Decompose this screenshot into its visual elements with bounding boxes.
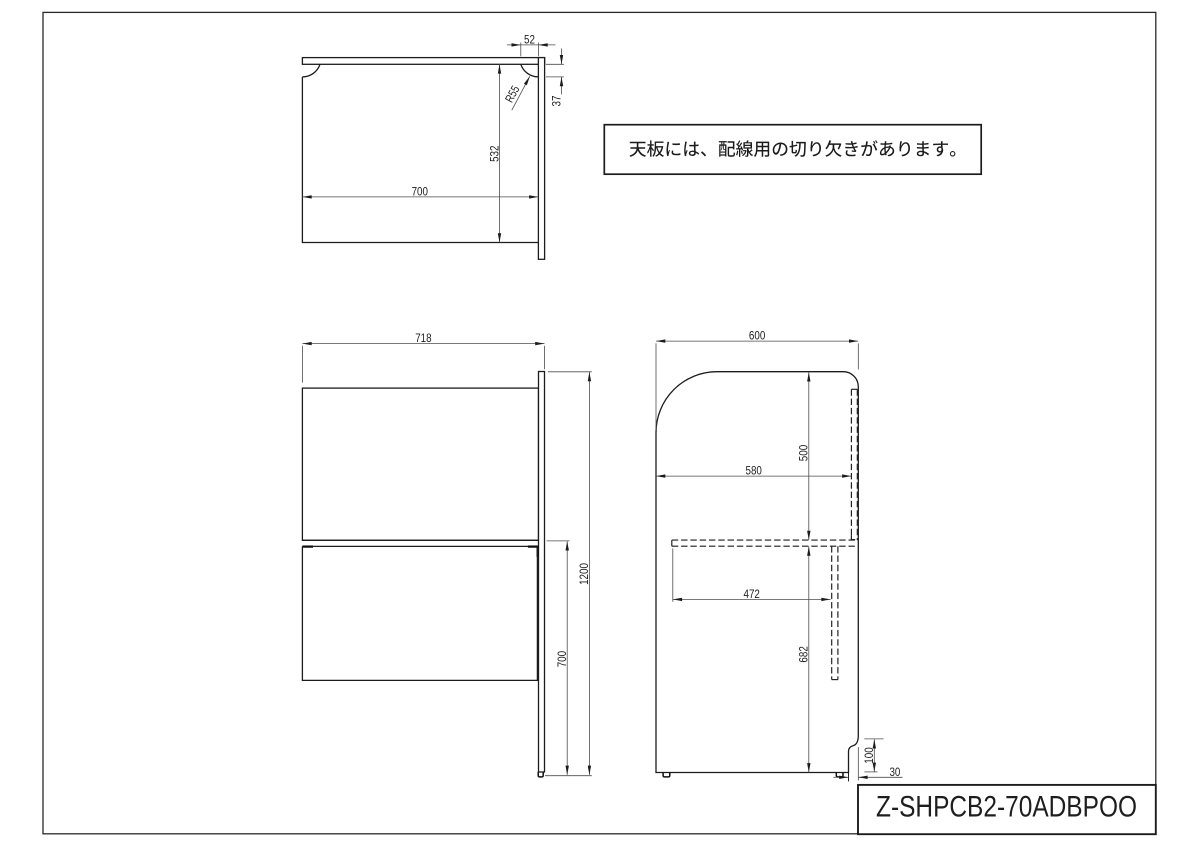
svg-text:37: 37 [549,96,563,107]
svg-text:472: 472 [744,587,760,601]
svg-text:718: 718 [415,331,432,345]
svg-text:600: 600 [749,329,766,343]
svg-text:500: 500 [797,444,811,461]
svg-text:30: 30 [889,765,900,779]
svg-text:Z-SHPCB2-70ADBPOO: Z-SHPCB2-70ADBPOO [876,792,1137,824]
svg-text:R55: R55 [502,83,522,105]
svg-text:52: 52 [524,33,535,47]
svg-text:682: 682 [797,646,811,662]
svg-text:700: 700 [412,185,429,199]
svg-text:1200: 1200 [577,563,591,585]
svg-text:700: 700 [555,651,569,668]
svg-text:532: 532 [487,146,501,162]
svg-text:580: 580 [746,464,763,478]
svg-text:100: 100 [862,747,876,764]
